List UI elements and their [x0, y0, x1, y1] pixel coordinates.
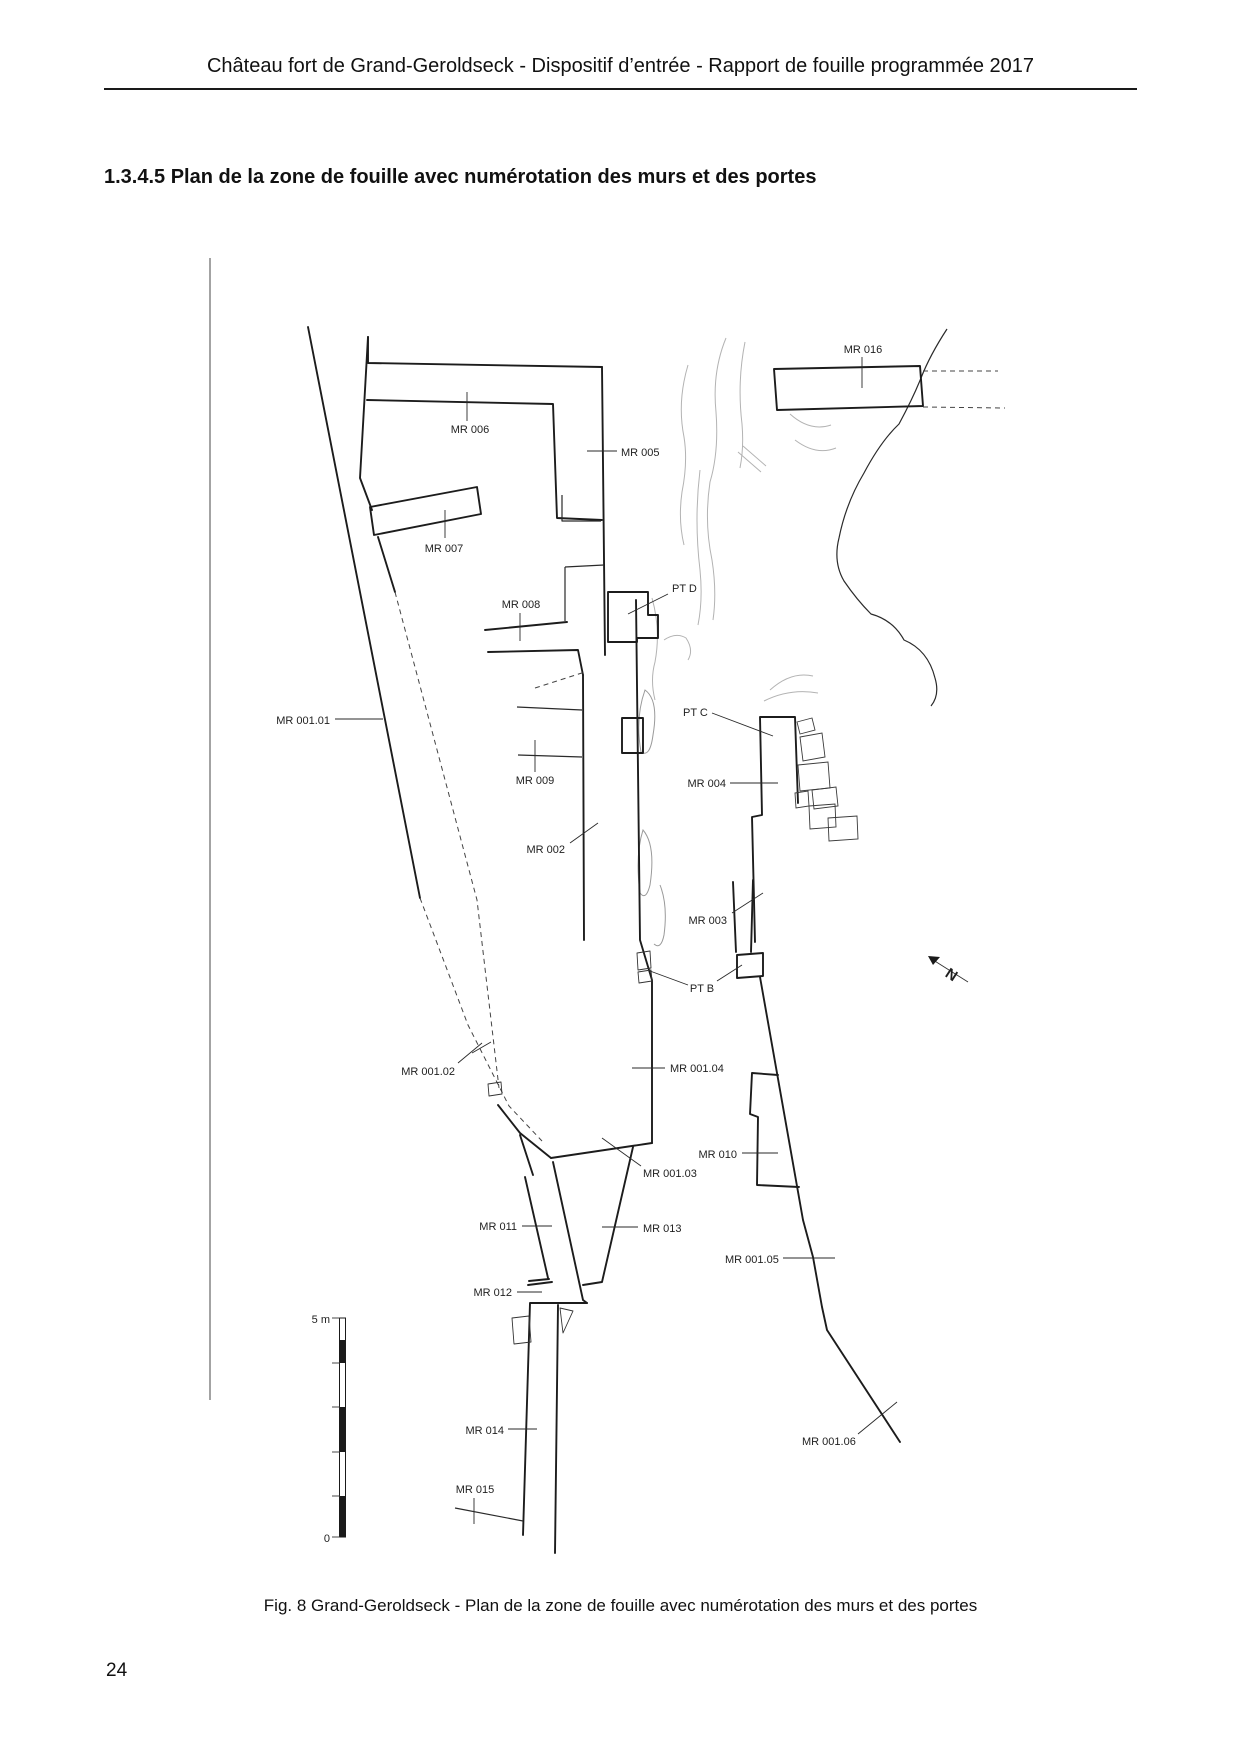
wall-mr001-05 [760, 977, 900, 1442]
label-mr003: MR 003 [688, 915, 727, 927]
wall-mr002-east [636, 600, 652, 1143]
label-mr006: MR 006 [451, 424, 490, 436]
leader-lines [335, 357, 897, 1524]
label-mr008: MR 008 [502, 599, 541, 611]
wall-mr005 [602, 367, 605, 655]
label-mr009: MR 009 [516, 775, 555, 787]
wall-mr011 [520, 1135, 549, 1281]
figure-caption: Fig. 8 Grand-Geroldseck - Plan de la zon… [0, 1596, 1241, 1616]
north-label: N [942, 965, 960, 985]
cliff-edge [837, 329, 947, 706]
label-mr012: MR 012 [473, 1287, 512, 1299]
wall-mr007 [370, 487, 481, 535]
label-ptc: PT C [683, 707, 708, 719]
wall-mr008 [485, 622, 583, 675]
wall-mr013 [553, 1147, 633, 1303]
label-mr001-06: MR 001.06 [802, 1436, 856, 1448]
plan-labels: MR 016 MR 006 MR 005 MR 007 MR 008 PT D … [276, 344, 882, 1496]
label-mr004: MR 004 [687, 778, 726, 790]
label-mr014: MR 014 [465, 1425, 504, 1437]
wall-mr006 [368, 337, 602, 367]
report-page: Château fort de Grand-Geroldseck - Dispo… [0, 0, 1241, 1755]
label-mr011: MR 011 [479, 1221, 517, 1233]
label-mr007: MR 007 [425, 543, 464, 555]
label-mr002: MR 002 [526, 844, 565, 856]
label-mr001-02: MR 001.02 [401, 1066, 455, 1078]
label-mr001-05: MR 001.05 [725, 1254, 779, 1266]
excavation-plan-figure: MR 016 MR 006 MR 005 MR 007 MR 008 PT D … [0, 0, 1241, 1755]
rock-contours [638, 338, 836, 946]
wall-mr014 [523, 1303, 587, 1553]
label-mr015: MR 015 [456, 1484, 495, 1496]
wall-mr002-west [583, 675, 584, 940]
wall-ptd-block [608, 592, 658, 642]
label-ptd: PT D [672, 583, 697, 595]
label-mr001-04: MR 001.04 [670, 1063, 724, 1075]
wall-mr009 [517, 707, 582, 757]
label-mr005: MR 005 [621, 447, 660, 459]
scale-bar: 5 m 0 [312, 1314, 346, 1545]
wall-mr003 [733, 880, 753, 952]
wall-mr004 [752, 717, 798, 942]
label-mr001-01: MR 001.01 [276, 715, 330, 727]
scale-zero-label: 0 [324, 1533, 330, 1545]
label-mr013: MR 013 [643, 1223, 682, 1235]
walls [308, 327, 1005, 1553]
wall-mr001-04 [551, 1143, 652, 1158]
wall-mr015 [455, 1508, 523, 1521]
label-mr001-03: MR 001.03 [643, 1168, 697, 1180]
wall-mr016 [774, 366, 923, 410]
label-ptb: PT B [690, 983, 714, 995]
scale-top-label: 5 m [312, 1314, 330, 1326]
page-number: 24 [106, 1660, 127, 1682]
rubble-stones [795, 718, 858, 841]
label-mr016: MR 016 [844, 344, 883, 356]
wall-mr012 [528, 1282, 552, 1285]
wall-mr010 [750, 1073, 799, 1187]
north-arrow: N [928, 956, 968, 985]
label-mr010: MR 010 [698, 1149, 737, 1161]
